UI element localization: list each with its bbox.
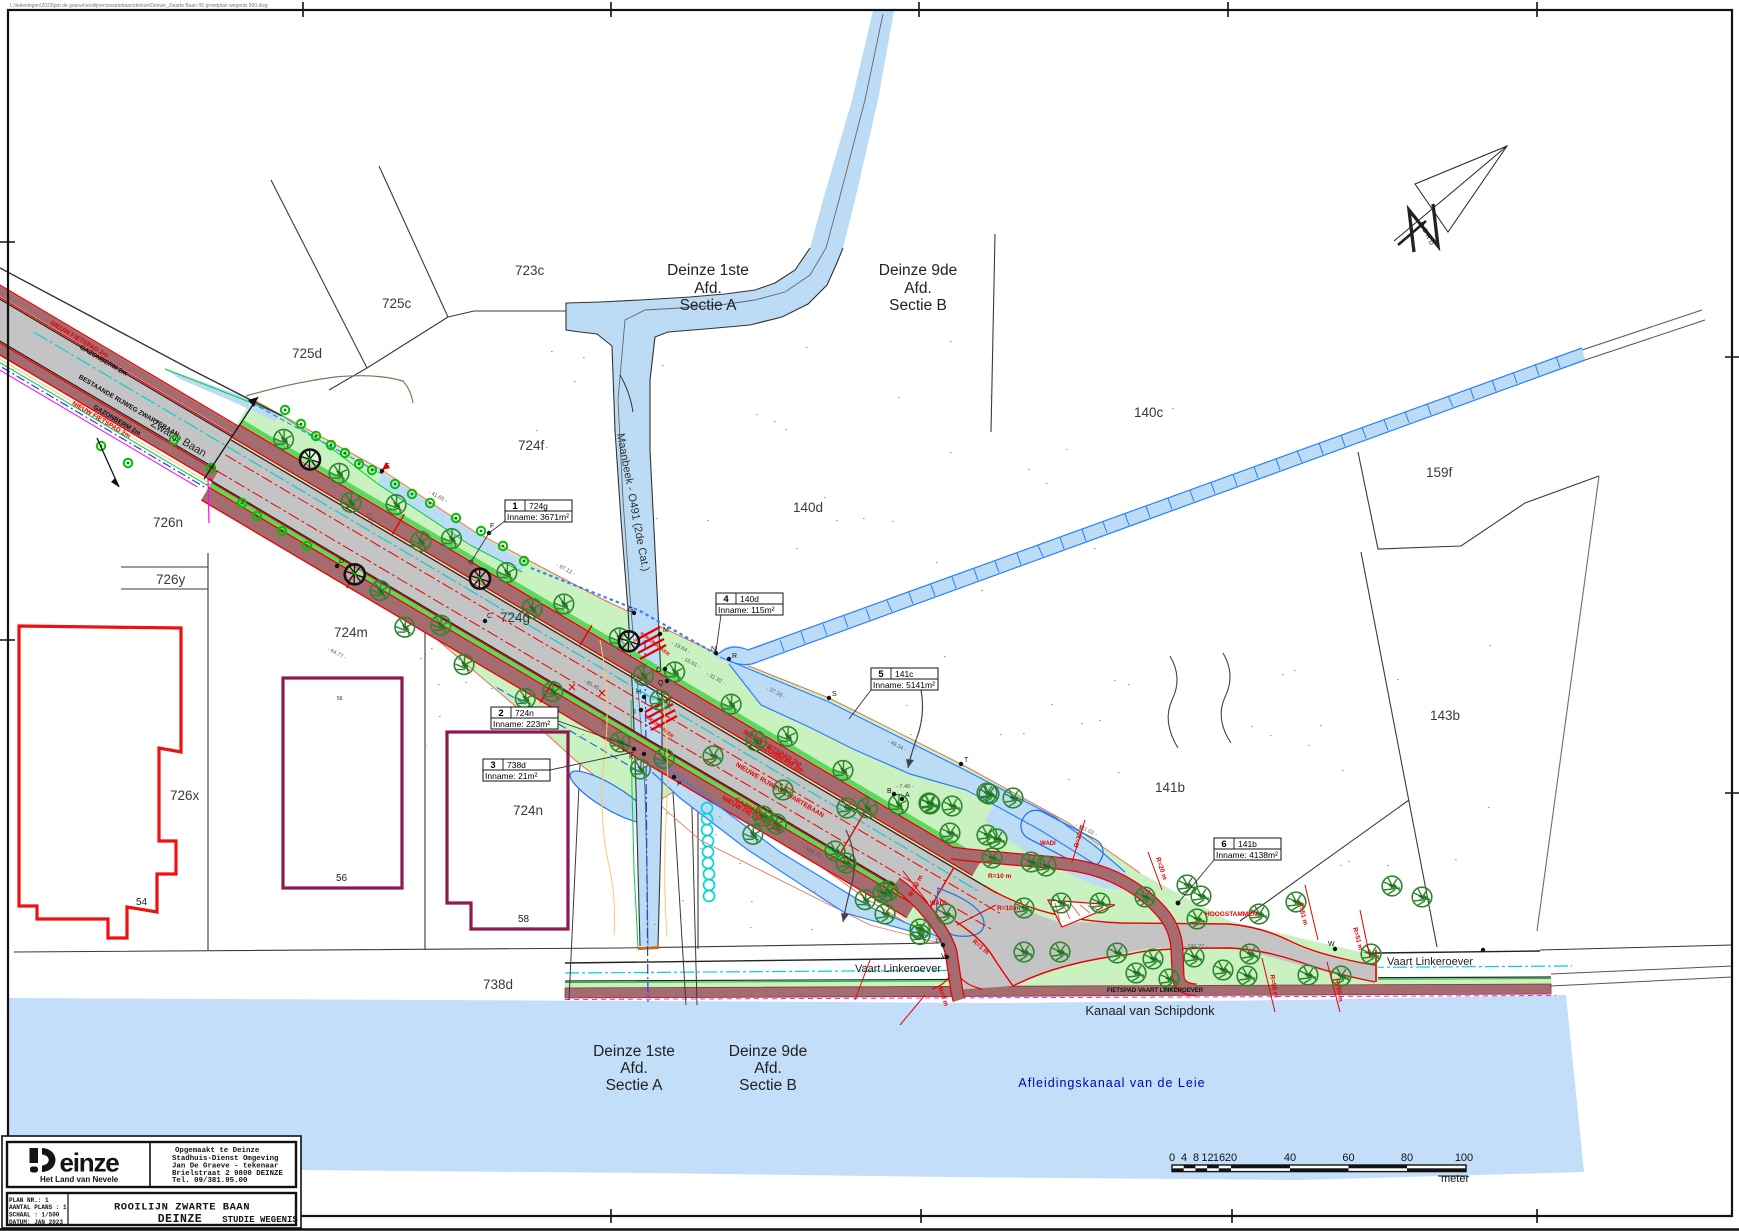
svg-text:ROOILIJN ZWARTE BAAN: ROOILIJN ZWARTE BAAN [114, 1202, 250, 1214]
svg-text:3: 3 [490, 760, 495, 771]
svg-text:141b: 141b [1155, 780, 1185, 795]
svg-text:HOOGSTAMMEN: HOOGSTAMMEN [1205, 911, 1258, 918]
svg-text:Sectie A: Sectie A [606, 1077, 664, 1094]
svg-text:Sectie B: Sectie B [739, 1077, 797, 1094]
svg-text:AANTAL PLANS : 1: AANTAL PLANS : 1 [9, 1204, 67, 1211]
svg-text:D: D [339, 558, 344, 565]
svg-text:140d: 140d [740, 594, 759, 604]
svg-text:20: 20 [1225, 1152, 1237, 1164]
svg-text:0: 0 [1169, 1152, 1175, 1164]
svg-text:Vaart Linkeroever: Vaart Linkeroever [1387, 956, 1473, 968]
svg-text:724n: 724n [515, 708, 534, 718]
svg-text:I: I [634, 709, 636, 716]
svg-text:5: 5 [878, 669, 884, 680]
svg-text:U: U [936, 938, 941, 945]
svg-text:A: A [905, 792, 910, 799]
svg-text:58: 58 [518, 914, 530, 925]
svg-text:Tel. 09/381.95.00: Tel. 09/381.95.00 [172, 1177, 248, 1185]
svg-text:724f: 724f [518, 438, 545, 453]
svg-text:Kanaal van Schipdonk: Kanaal van Schipdonk [1085, 1003, 1215, 1018]
svg-text:725c: 725c [382, 296, 412, 311]
svg-text:56: 56 [337, 696, 343, 702]
svg-text:54: 54 [136, 897, 148, 908]
svg-text:726y: 726y [156, 572, 186, 587]
svg-text:80: 80 [1401, 1152, 1413, 1164]
svg-text:Inname: 223m²: Inname: 223m² [493, 719, 550, 729]
svg-text:159f: 159f [1426, 465, 1453, 480]
svg-text:O: O [656, 667, 662, 674]
svg-text:meter: meter [1441, 1173, 1469, 1185]
svg-text:R=10 m: R=10 m [988, 873, 1012, 880]
svg-text:Deinze 1ste: Deinze 1ste [593, 1043, 675, 1060]
svg-text:141b: 141b [1238, 839, 1257, 849]
svg-text:WADI: WADI [930, 901, 946, 907]
svg-text:16: 16 [1213, 1152, 1225, 1164]
svg-text:M: M [663, 627, 669, 634]
svg-text:12: 12 [1201, 1152, 1213, 1164]
svg-text:Afd.: Afd. [694, 280, 722, 297]
svg-text:Sectie A: Sectie A [680, 297, 738, 314]
svg-text:Afd.: Afd. [620, 1060, 648, 1077]
svg-text:DATUM: JAN 2023: DATUM: JAN 2023 [9, 1219, 63, 1226]
svg-text:723c: 723c [515, 263, 545, 278]
svg-text:Inname: 3671m²: Inname: 3671m² [507, 512, 569, 522]
svg-text:FIETSPAD VAART LINKEROEVER: FIETSPAD VAART LINKEROEVER [1107, 988, 1204, 994]
svg-text:PLAN NR.: 1: PLAN NR.: 1 [9, 1197, 49, 1204]
svg-text:1: 1 [512, 501, 518, 512]
svg-text:C: C [487, 613, 492, 620]
svg-text:Het Land van Nevele: Het Land van Nevele [40, 1175, 119, 1184]
svg-text:724g: 724g [529, 501, 548, 511]
svg-text:Opgemaakt te Deinze: Opgemaakt te Deinze [175, 1147, 260, 1155]
svg-text:P: P [677, 781, 682, 788]
svg-text:141c: 141c [895, 669, 914, 679]
svg-text:40: 40 [1284, 1152, 1296, 1164]
svg-text:R=10 m: R=10 m [997, 905, 1021, 912]
svg-text:725d: 725d [292, 346, 322, 361]
svg-text:724n: 724n [513, 803, 543, 818]
svg-text:Q: Q [658, 680, 664, 687]
svg-text:738d: 738d [507, 760, 526, 770]
svg-text:2: 2 [498, 708, 503, 719]
svg-text:WADI: WADI [1040, 841, 1056, 847]
svg-text:724g: 724g [500, 610, 530, 625]
svg-text:726x: 726x [170, 788, 200, 803]
svg-text:Afd.: Afd. [754, 1060, 782, 1077]
svg-text:STUDIE WEGENIS: STUDIE WEGENIS [222, 1215, 298, 1225]
svg-text:W: W [1328, 941, 1335, 948]
svg-text:Inname: 4138m²: Inname: 4138m² [1216, 850, 1278, 860]
svg-text:- 131.27 -: - 131.27 - [1184, 944, 1208, 950]
svg-text:L:\tekeningen\2023\jan de grae: L:\tekeningen\2023\jan de graeve\rooilij… [10, 3, 268, 9]
svg-text:8: 8 [1193, 1152, 1199, 1164]
svg-text:Sectie B: Sectie B [889, 297, 947, 314]
svg-text:- 7.48 -: - 7.48 - [896, 784, 914, 790]
svg-text:Deinze 9de: Deinze 9de [879, 262, 957, 279]
svg-text:L: L [623, 746, 627, 753]
svg-text:K: K [629, 754, 634, 761]
svg-text:S: S [832, 691, 837, 698]
svg-text:Afd.: Afd. [904, 280, 932, 297]
svg-text:143b: 143b [1430, 708, 1460, 723]
svg-text:726n: 726n [153, 515, 183, 530]
svg-text:Deinze 1ste: Deinze 1ste [667, 262, 749, 279]
svg-text:B: B [887, 788, 892, 795]
svg-text:56: 56 [336, 873, 348, 884]
svg-text:R: R [732, 653, 737, 660]
svg-text:Inname: 21m²: Inname: 21m² [485, 771, 538, 781]
svg-text:einze: einze [60, 1148, 120, 1178]
svg-text:Inname: 5141m²: Inname: 5141m² [873, 680, 935, 690]
svg-text:T: T [964, 757, 969, 764]
svg-text:140d: 140d [793, 500, 823, 515]
svg-text:DEINZE: DEINZE [158, 1213, 202, 1226]
svg-text:H: H [636, 689, 641, 696]
svg-text:4: 4 [723, 594, 729, 605]
svg-text:60: 60 [1342, 1152, 1354, 1164]
svg-text:6: 6 [1221, 839, 1226, 850]
svg-text:4: 4 [1181, 1152, 1187, 1164]
svg-text:F: F [490, 523, 494, 530]
svg-text:724m: 724m [334, 625, 368, 640]
svg-text:SCHAAL : 1/500: SCHAAL : 1/500 [9, 1212, 60, 1219]
svg-text:Inname: 115m²: Inname: 115m² [718, 605, 775, 615]
svg-text:738d: 738d [483, 977, 513, 992]
svg-text:Deinze 9de: Deinze 9de [729, 1043, 807, 1060]
svg-text:140c: 140c [1134, 405, 1164, 420]
svg-text:Afleidingskanaal van de Leie: Afleidingskanaal van de Leie [1018, 1076, 1205, 1090]
svg-text:100: 100 [1455, 1152, 1473, 1164]
